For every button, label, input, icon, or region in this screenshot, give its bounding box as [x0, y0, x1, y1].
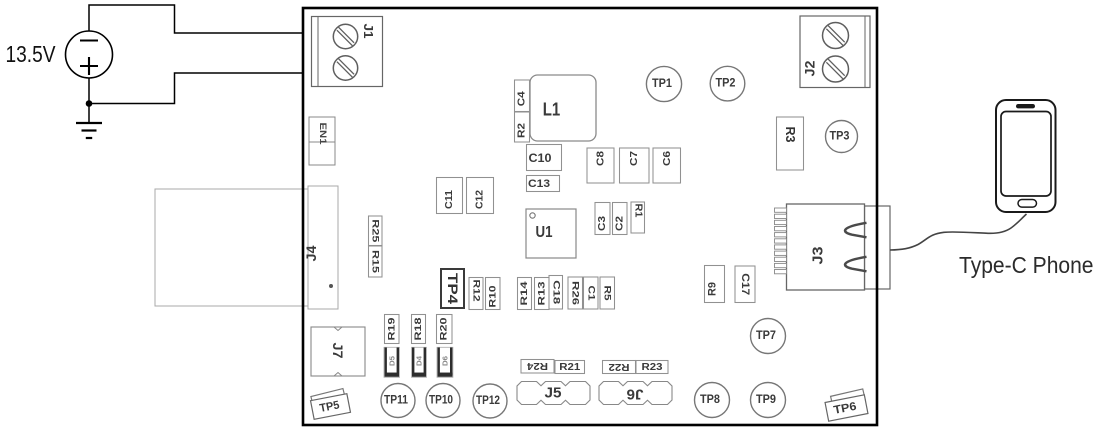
- svg-text:R22: R22: [608, 361, 629, 373]
- svg-text:TP11: TP11: [384, 395, 409, 407]
- svg-text:TP7: TP7: [756, 330, 776, 342]
- svg-text:R21: R21: [559, 361, 580, 373]
- svg-text:C13: C13: [528, 178, 550, 190]
- svg-text:R3: R3: [783, 127, 797, 143]
- svg-text:TP10: TP10: [429, 395, 453, 407]
- svg-text:R5: R5: [602, 286, 613, 302]
- svg-text:C2: C2: [614, 216, 625, 231]
- svg-text:C3: C3: [597, 216, 608, 231]
- svg-text:TP12: TP12: [476, 395, 500, 407]
- svg-text:U1: U1: [536, 224, 553, 241]
- svg-text:J7: J7: [330, 343, 346, 359]
- svg-text:R9: R9: [707, 282, 719, 296]
- svg-text:J1: J1: [361, 24, 376, 39]
- svg-text:C18: C18: [550, 280, 561, 304]
- svg-text:R14: R14: [519, 281, 530, 306]
- svg-text:TP1: TP1: [652, 78, 673, 90]
- svg-text:Type-C Phone: Type-C Phone: [959, 252, 1094, 278]
- svg-text:R15: R15: [370, 250, 381, 274]
- svg-text:J5: J5: [545, 386, 562, 402]
- svg-text:C17: C17: [739, 273, 751, 295]
- svg-text:J4: J4: [304, 245, 319, 262]
- svg-text:R10: R10: [487, 286, 498, 308]
- svg-text:C10: C10: [529, 151, 552, 165]
- svg-text:R20: R20: [439, 318, 450, 341]
- svg-text:C7: C7: [628, 151, 640, 166]
- svg-text:R23: R23: [642, 361, 663, 373]
- svg-text:C11: C11: [444, 190, 455, 209]
- svg-text:D5: D5: [387, 356, 396, 366]
- svg-text:D4: D4: [415, 355, 424, 366]
- svg-text:R2: R2: [517, 123, 528, 138]
- svg-text:R19: R19: [386, 318, 397, 341]
- svg-text:R1: R1: [632, 204, 643, 218]
- svg-text:C12: C12: [475, 190, 486, 209]
- svg-text:R25: R25: [370, 219, 381, 243]
- svg-text:R12: R12: [471, 280, 482, 302]
- svg-text:R13: R13: [536, 282, 547, 306]
- svg-text:TP9: TP9: [756, 394, 776, 406]
- svg-text:C6: C6: [661, 151, 673, 166]
- svg-text:C1: C1: [585, 286, 596, 302]
- svg-text:L1: L1: [543, 99, 561, 120]
- svg-text:R26: R26: [570, 281, 581, 305]
- svg-text:D6: D6: [440, 356, 449, 366]
- svg-text:J6: J6: [627, 386, 644, 402]
- svg-text:13.5V: 13.5V: [6, 41, 57, 67]
- svg-text:TP3: TP3: [830, 131, 850, 143]
- svg-text:TP8: TP8: [700, 394, 721, 406]
- svg-text:J3: J3: [810, 247, 827, 265]
- svg-text:TP2: TP2: [716, 78, 736, 90]
- svg-text:C8: C8: [595, 151, 607, 166]
- svg-text:EN1: EN1: [317, 123, 328, 146]
- svg-text:R18: R18: [413, 318, 424, 341]
- svg-text:C4: C4: [517, 91, 528, 106]
- svg-text:J2: J2: [803, 61, 818, 77]
- svg-text:R24: R24: [527, 360, 548, 372]
- svg-text:TP4: TP4: [445, 273, 460, 305]
